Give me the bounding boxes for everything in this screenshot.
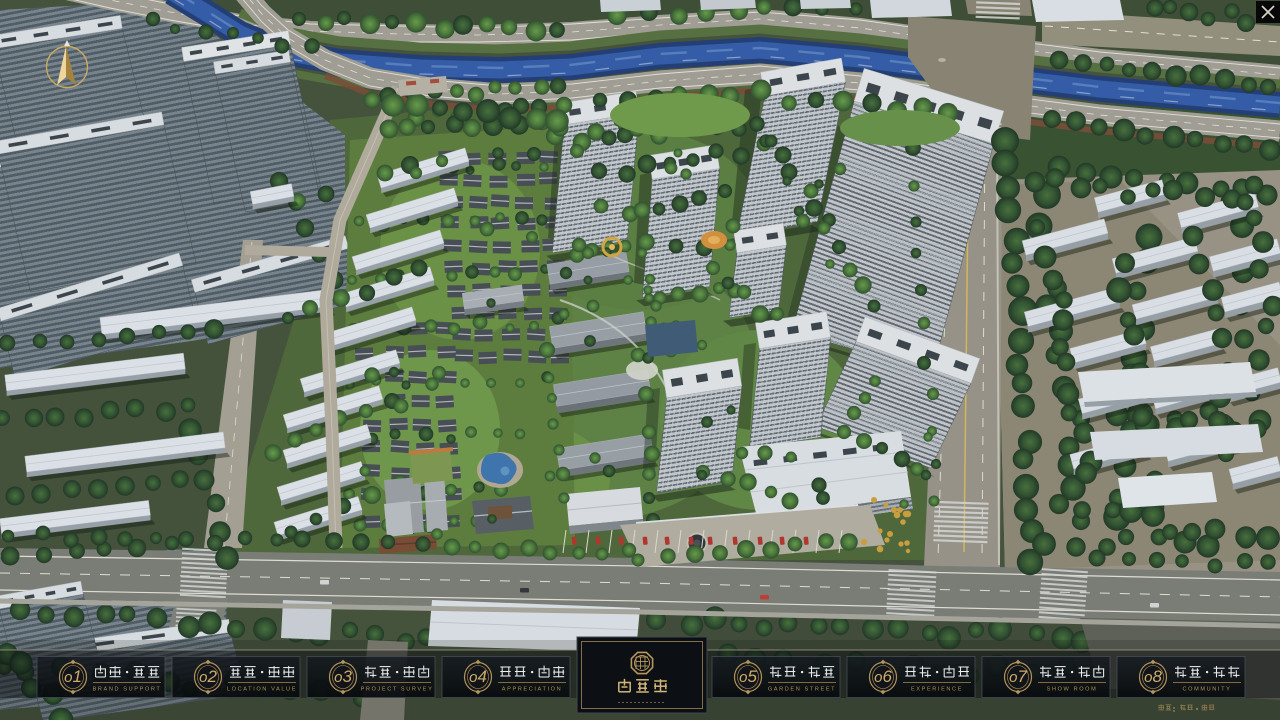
svg-text:o5: o5 [739,667,757,686]
svg-text:o7: o7 [1009,667,1027,686]
svg-text:o8: o8 [1144,667,1162,686]
svg-text:SHOW ROOM: SHOW ROOM [1047,687,1098,693]
svg-text:o2: o2 [199,667,217,686]
svg-text:APPRECIATION: APPRECIATION [502,687,562,693]
svg-text:o6: o6 [874,667,892,686]
svg-text:BRAND SUPPORT: BRAND SUPPORT [93,687,162,693]
svg-text:EXPERIENCE: EXPERIENCE [911,687,963,693]
svg-text:COMMUNITY: COMMUNITY [1183,687,1232,693]
svg-text:PROJECT SURVEY: PROJECT SURVEY [361,687,434,693]
svg-text:o3: o3 [334,667,352,686]
svg-text:LOCATION VALUE: LOCATION VALUE [227,687,297,693]
svg-text:o1: o1 [64,667,82,686]
svg-text:GARDEN STREET: GARDEN STREET [768,687,836,693]
svg-text:o4: o4 [469,667,487,686]
